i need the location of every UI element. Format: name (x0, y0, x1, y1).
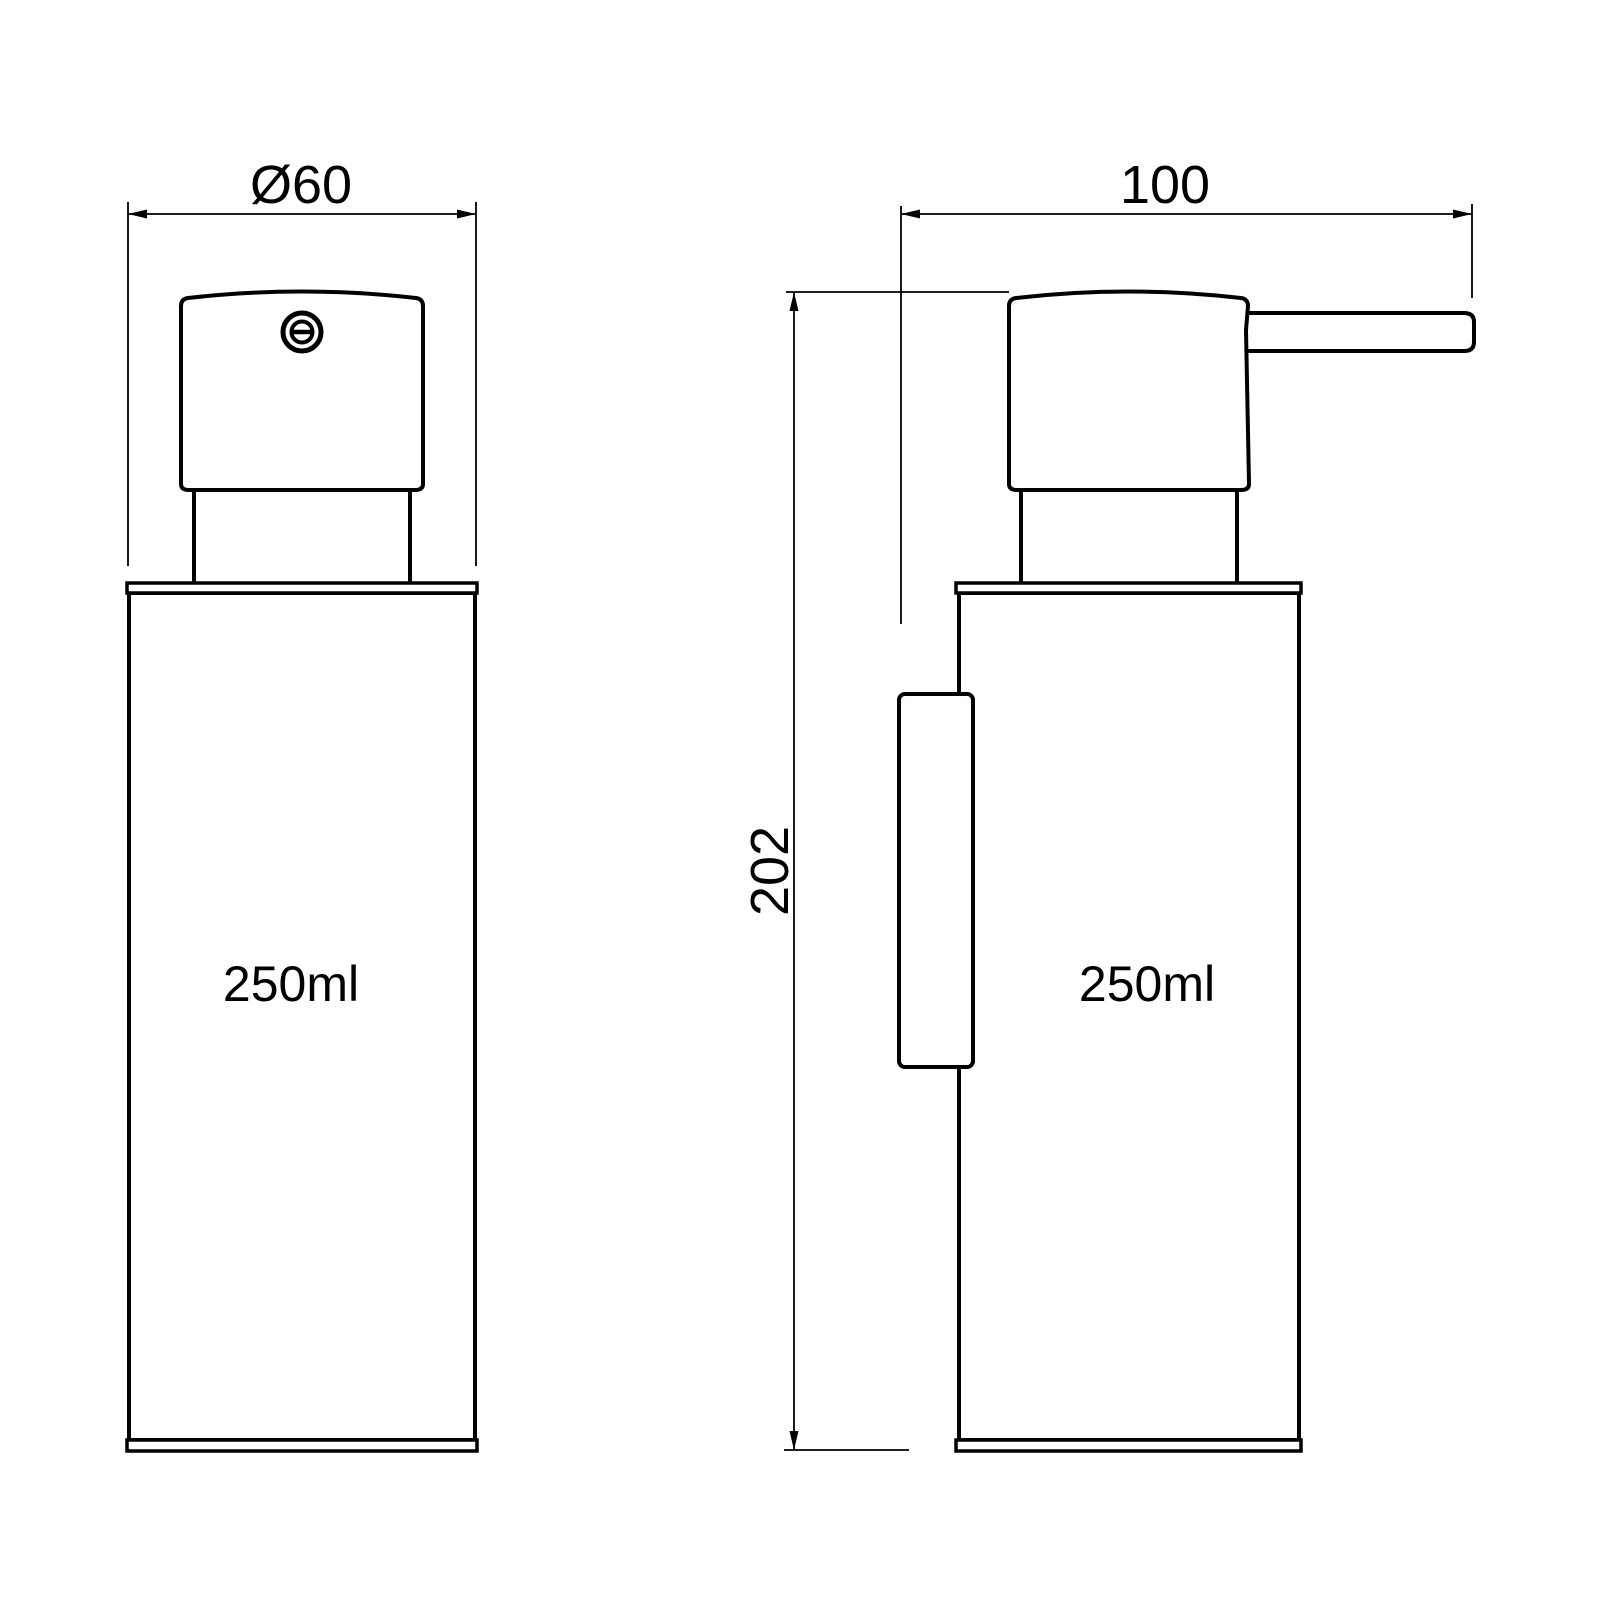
diameter-arrow-left-icon (128, 210, 147, 219)
depth-arrow-left-icon (901, 210, 920, 219)
spout (1248, 313, 1474, 351)
bottle-rim-side (956, 583, 1301, 593)
bottle-rim-front (127, 583, 477, 593)
soap-dispenser-drawing: Ø60 250ml 100 202 (0, 0, 1600, 1600)
pump-head-side (1009, 292, 1249, 491)
height-arrow-bottom-icon (790, 1431, 799, 1450)
bottle-base-front (127, 1440, 477, 1451)
height-dimension-label: 202 (740, 826, 800, 916)
diameter-dimension-label: Ø60 (250, 155, 352, 215)
diameter-arrow-right-icon (457, 210, 476, 219)
bottle-body-front (129, 593, 475, 1440)
wall-mount-bracket (899, 694, 973, 1067)
capacity-label-front: 250ml (223, 956, 359, 1012)
bottle-base-side (956, 1440, 1301, 1451)
side-view: 100 202 250ml (740, 155, 1474, 1451)
capacity-label-side: 250ml (1079, 956, 1215, 1012)
depth-dimension-label: 100 (1120, 155, 1210, 215)
technical-drawing-canvas: Ø60 250ml 100 202 (0, 0, 1600, 1600)
height-arrow-top-icon (790, 292, 799, 311)
front-view: Ø60 250ml (127, 155, 477, 1451)
bottle-body-side (959, 593, 1299, 1440)
depth-arrow-right-icon (1453, 210, 1472, 219)
